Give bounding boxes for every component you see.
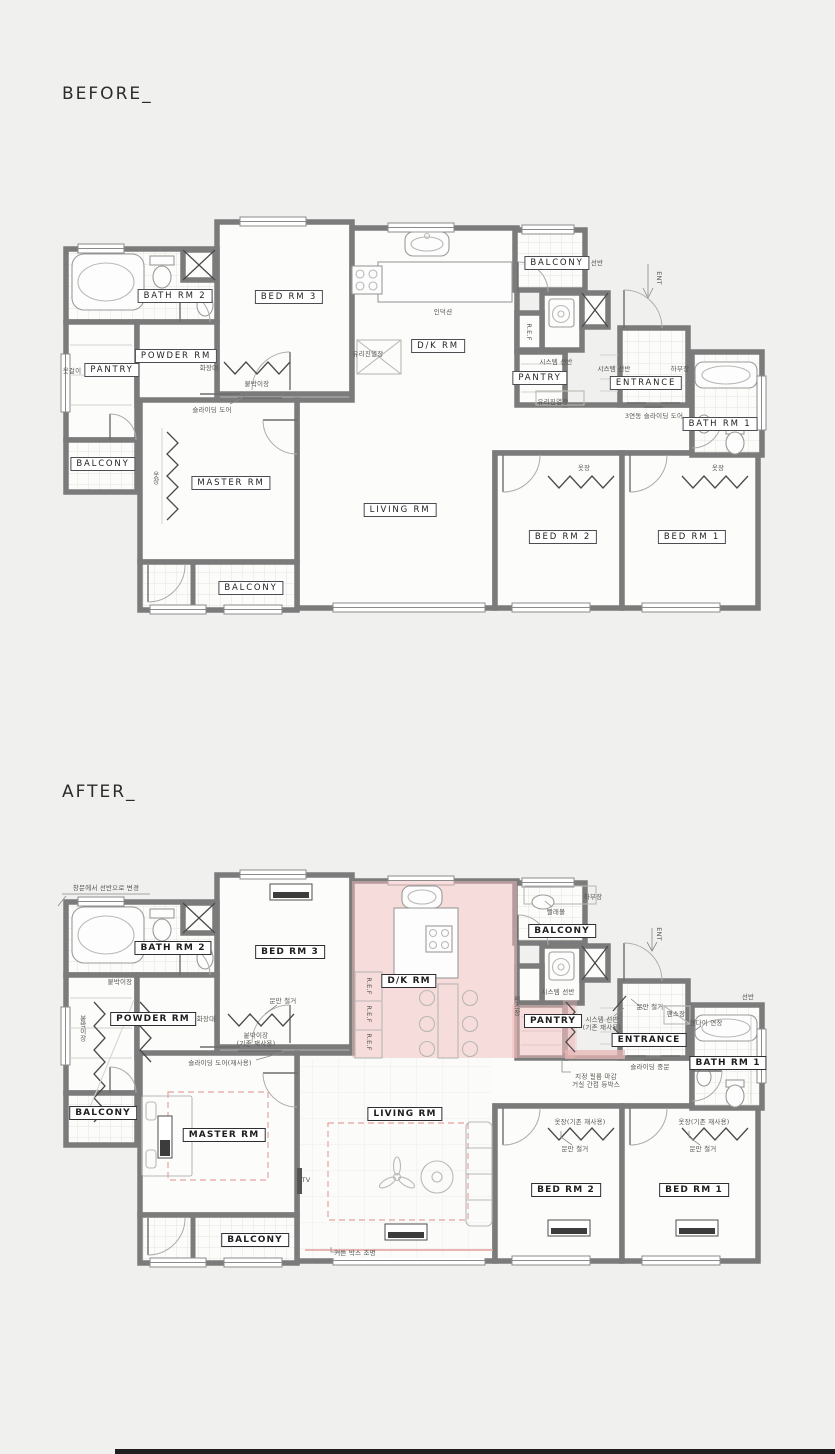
footer-bar: [115, 1449, 835, 1454]
floorplan-comparison: BEFORE_ AFTER_ BATH RM 2BED RM 3D/K RMBA…: [0, 0, 835, 1454]
after-title: AFTER_: [62, 782, 137, 802]
before-title: BEFORE_: [62, 84, 153, 104]
floorplan-drawing: [0, 0, 835, 1454]
